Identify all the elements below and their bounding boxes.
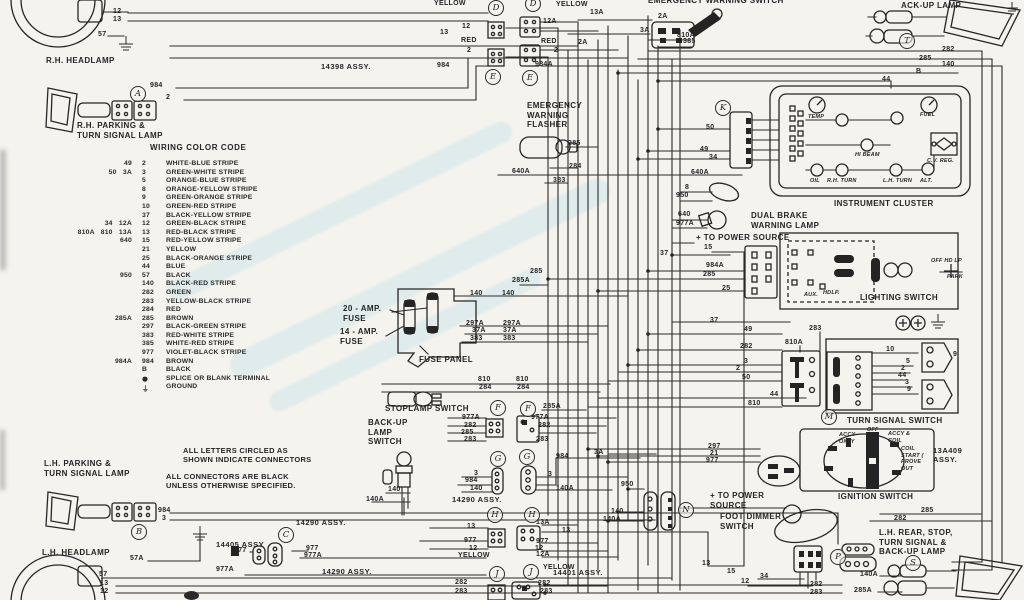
color-code-row: 284RED	[56, 306, 336, 315]
wire-label: 977A	[462, 414, 480, 422]
cc-alias: 49	[56, 160, 142, 169]
wire-label: 12	[462, 23, 470, 31]
component-label: EMERGENCY WARNING SWITCH	[648, 0, 784, 6]
wire-label: 283	[464, 436, 477, 444]
cc-code: 984	[142, 358, 166, 367]
color-code-rows: 492WHITE-BLUE STRIPE50 3A3GREEN-WHITE ST…	[56, 160, 336, 392]
wire-label: 25	[722, 285, 730, 293]
color-code-row: 44BLUE	[56, 263, 336, 272]
wire-label: 57	[99, 571, 107, 579]
color-code-row: 297BLACK-GREEN STRIPE	[56, 323, 336, 332]
wire-label: 640	[678, 211, 691, 219]
component-label: L.H. HEADLAMP	[42, 548, 110, 558]
wiring-diagram-canvas: WIRING COLOR CODE 492WHITE-BLUE STRIPE50…	[0, 0, 1024, 600]
connector-circle-G: G	[519, 449, 535, 465]
cc-code: 37	[142, 212, 166, 221]
cc-code: 282	[142, 289, 166, 298]
cc-code: 283	[142, 298, 166, 307]
wire-label: 44	[770, 391, 778, 399]
color-code-row: 10GREEN-RED STRIPE	[56, 203, 336, 212]
wire-label: 5	[906, 358, 910, 366]
wire-label: B	[916, 68, 921, 76]
color-code-row: 21YELLOW	[56, 246, 336, 255]
cc-alias	[56, 349, 142, 358]
wire-label: 984	[437, 62, 450, 70]
cc-name: BLUE	[166, 263, 336, 272]
wire-label: 285A	[543, 403, 561, 411]
wire-label: 140	[388, 486, 401, 494]
cc-code: 5	[142, 177, 166, 186]
cc-alias	[56, 255, 142, 264]
assembly-label: 14401 ASSY.	[553, 569, 603, 578]
cc-name: BLACK-GREEN STRIPE	[166, 323, 336, 332]
wire-label: 3A	[594, 449, 604, 457]
wire-label: 13	[440, 29, 448, 37]
wire-label: 140	[502, 290, 515, 298]
wire-label: RED	[461, 37, 477, 45]
cc-alias	[56, 375, 142, 384]
color-code-row: 8ORANGE-YELLOW STRIPE	[56, 186, 336, 195]
component-label: EMERGENCY WARNING FLASHER	[527, 101, 582, 130]
component-label: STOPLAMP SWITCH	[385, 404, 469, 414]
cc-alias	[56, 194, 142, 203]
wire-label: 2A	[578, 39, 588, 47]
cc-code: 284	[142, 306, 166, 315]
wire-label: 12	[113, 8, 121, 16]
cc-alias	[56, 383, 142, 392]
cc-alias: 950	[56, 272, 142, 281]
assembly-label: 14405 ASSY	[216, 541, 264, 550]
component-label: 14 - AMP. FUSE	[340, 327, 378, 346]
wire-label: 385	[568, 140, 581, 148]
connector-circle-F: F	[490, 400, 506, 416]
rh-parking-lamp-shape	[46, 88, 77, 132]
component-label: L.H. REAR, STOP, TURN SIGNAL & BACK-UP L…	[879, 528, 953, 557]
cc-alias: 34 12A	[56, 220, 142, 229]
wire-label: 57A	[130, 555, 144, 563]
connector-circle-H: H	[487, 507, 503, 523]
wire-label: 282	[538, 422, 551, 430]
cc-code: 2	[142, 160, 166, 169]
wire-label: 9	[953, 351, 957, 359]
color-code-row: 140BLACK-RED STRIPE	[56, 280, 336, 289]
foot-dimmer-shape	[771, 504, 840, 549]
wire-label: 140	[470, 485, 483, 493]
wire-label: 285	[703, 271, 716, 279]
color-code-row: 283YELLOW-BLACK STRIPE	[56, 298, 336, 307]
tiny-label: ACCY & COIL	[888, 431, 910, 444]
cc-name: BLACK-YELLOW STRIPE	[166, 212, 336, 221]
cc-alias	[56, 186, 142, 195]
wire-label: 284	[479, 384, 492, 392]
wire-label: 140	[942, 61, 955, 69]
color-code-row: 385WHITE-RED STRIPE	[56, 340, 336, 349]
cc-code: 44	[142, 263, 166, 272]
cc-code: 3	[142, 169, 166, 178]
wire-label: 283	[536, 436, 549, 444]
color-code-row: ●SPLICE OR BLANK TERMINAL	[56, 375, 336, 384]
cc-alias	[56, 340, 142, 349]
wire-label: 8	[685, 184, 689, 192]
wire-label: 810	[748, 400, 761, 408]
wire-label: 34	[709, 154, 717, 162]
color-code-row: 285A285BROWN	[56, 315, 336, 324]
assembly-label: 14290 ASSY.	[452, 496, 502, 505]
wire-label: 37	[710, 317, 718, 325]
wire-label: 383	[503, 335, 516, 343]
tiny-label: TEMP	[808, 114, 824, 121]
assembly-label: 14290 ASSY.	[322, 568, 372, 577]
wire-label: YELLOW	[434, 0, 466, 8]
tiny-label: L.H. TURN	[883, 178, 912, 185]
wire-label: 3	[548, 471, 552, 479]
cc-alias: 810A 810 13A	[56, 229, 142, 238]
wire-label: 37A	[472, 327, 486, 335]
cc-alias	[56, 177, 142, 186]
wire-label: 282	[455, 579, 468, 587]
assembly-label: 13A409 ASSY.	[933, 447, 962, 464]
wire-label: YELLOW	[458, 552, 490, 560]
wire-label: 950	[676, 192, 689, 200]
connector-circle-M: M	[821, 409, 837, 425]
cc-name: RED-WHITE STRIPE	[166, 332, 336, 341]
cc-code: 8	[142, 186, 166, 195]
connector-circle-A: A	[130, 86, 146, 102]
cc-name: YELLOW-BLACK STRIPE	[166, 298, 336, 307]
connector-circle-E: E	[522, 70, 538, 86]
tiny-label: HI BEAM	[855, 152, 880, 159]
connector-circle-F: F	[520, 401, 536, 417]
cc-alias: 50 3A	[56, 169, 142, 178]
note-text: ALL LETTERS CIRCLED AS SHOWN INDICATE CO…	[183, 446, 311, 465]
assembly-label: 14398 ASSY.	[321, 63, 371, 72]
cc-code: 25	[142, 255, 166, 264]
cc-code: 383	[142, 332, 166, 341]
cc-code: B	[142, 366, 166, 375]
wire-label: 2	[554, 47, 558, 55]
wire-label: 12	[100, 588, 108, 596]
cc-code: 21	[142, 246, 166, 255]
cc-name: RED-BLACK STRIPE	[166, 229, 336, 238]
wire-label: 810A	[785, 339, 803, 347]
connector-circle-C: C	[278, 527, 294, 543]
wire-label: 984A	[535, 61, 553, 69]
wire-label: 984	[556, 453, 569, 461]
wire-label: 2	[467, 47, 471, 55]
wire-label: 810	[478, 376, 491, 384]
cc-alias: 285A	[56, 315, 142, 324]
wire-label: 50	[706, 124, 714, 132]
wire-label: 383	[470, 335, 483, 343]
cc-alias	[56, 323, 142, 332]
component-label: TURN SIGNAL SWITCH	[847, 416, 943, 426]
component-label: R.H. PARKING & TURN SIGNAL LAMP	[77, 121, 163, 140]
cc-code: ⏚	[142, 383, 166, 392]
wire-label: 977A	[676, 220, 694, 228]
component-label: BACK-UP LAMP SWITCH	[368, 418, 408, 447]
wire-label: 3	[162, 515, 166, 523]
cc-name: GREEN-ORANGE STRIPE	[166, 194, 336, 203]
cc-code: 297	[142, 323, 166, 332]
wire-label: 285	[530, 268, 543, 276]
cc-code: 10	[142, 203, 166, 212]
color-code-row: 25BLACK-ORANGE STRIPE	[56, 255, 336, 264]
tiny-label: C.V. REG.	[927, 158, 954, 165]
wire-label: 12A	[536, 551, 550, 559]
wire-label: 285	[921, 507, 934, 515]
wire-label: 140A	[366, 496, 384, 504]
wire-label: 15	[727, 568, 735, 576]
component-label: FUSE PANEL	[419, 355, 473, 365]
wire-label: 284	[517, 384, 530, 392]
tiny-label: COIL START ( PROVE OUT	[901, 446, 924, 472]
wire-label: 50	[742, 374, 750, 382]
wire-label: 2	[736, 365, 740, 373]
cc-code: 385	[142, 340, 166, 349]
component-label: INSTRUMENT CLUSTER	[834, 199, 934, 209]
wire-label: 3A	[640, 27, 650, 35]
color-code-row: 984A984BROWN	[56, 358, 336, 367]
color-code-row: 492WHITE-BLUE STRIPE	[56, 160, 336, 169]
cc-alias	[56, 306, 142, 315]
cc-code: 285	[142, 315, 166, 324]
color-code-row: 37BLACK-YELLOW STRIPE	[56, 212, 336, 221]
wire-label: 140A	[556, 485, 574, 493]
cc-code: 15	[142, 237, 166, 246]
wire-label: 3	[744, 358, 748, 366]
cc-name: RED	[166, 306, 336, 315]
wire-label: 57	[98, 31, 106, 39]
wire-label: 284	[569, 163, 582, 171]
backup-switch-shape	[397, 452, 411, 466]
cc-alias	[56, 212, 142, 221]
component-label: LIGHTING SWITCH	[860, 293, 938, 303]
wire-label: 977	[464, 537, 477, 545]
note-text: ALL CONNECTORS ARE BLACK UNLESS OTHERWIS…	[166, 472, 296, 491]
wire-label: 2	[166, 94, 170, 102]
color-code-row: 9GREEN-ORANGE STRIPE	[56, 194, 336, 203]
color-code-row: 383RED-WHITE STRIPE	[56, 332, 336, 341]
wire-label: 984	[158, 507, 171, 515]
cc-alias	[56, 298, 142, 307]
cc-name: BLACK	[166, 366, 336, 375]
color-code-row: 810A 810 13A13RED-BLACK STRIPE	[56, 229, 336, 238]
tiny-label: OFF	[867, 427, 879, 434]
wire-label: 44	[882, 76, 890, 84]
cc-alias	[56, 366, 142, 375]
wire-label: 282	[942, 46, 955, 54]
wire-label: 283	[810, 589, 823, 597]
cc-name: BROWN	[166, 315, 336, 324]
cc-name: RED-YELLOW STRIPE	[166, 237, 336, 246]
wire-label: 282	[538, 580, 551, 588]
cc-alias	[56, 332, 142, 341]
cc-code: 13	[142, 229, 166, 238]
connector-circle-G: G	[490, 451, 506, 467]
tiny-label: PARK	[947, 274, 963, 281]
color-code-row: 64015RED-YELLOW STRIPE	[56, 237, 336, 246]
connector-circle-J: J	[489, 566, 505, 582]
component-label: FOOT DIMMER SWITCH	[720, 512, 781, 531]
assembly-label: 14290 ASSY.	[296, 519, 346, 528]
cc-name: WHITE-RED STRIPE	[166, 340, 336, 349]
wire-label: 810	[516, 376, 529, 384]
wire-label: 10	[886, 346, 894, 354]
connector-circle-S: S	[905, 555, 921, 571]
cc-alias	[56, 203, 142, 212]
connector-circle-T: T	[899, 33, 915, 49]
wire-label: 13	[467, 523, 475, 531]
wire-label: YELLOW	[556, 1, 588, 9]
connector-circle-N: N	[678, 502, 694, 518]
cc-name: BROWN	[166, 358, 336, 367]
tiny-label: OFF HD LP	[931, 258, 962, 265]
wire-label: 285A	[854, 587, 872, 595]
tiny-label: ACCY ONLY	[839, 432, 855, 445]
wire-label: 13	[100, 580, 108, 588]
tiny-label: R.H. TURN	[827, 178, 857, 185]
wire-label: 12A	[543, 18, 557, 26]
wire-label: 37	[660, 250, 668, 258]
cc-code: 9	[142, 194, 166, 203]
wire-label: 140A	[860, 571, 878, 579]
cc-name: ORANGE-BLUE STRIPE	[166, 177, 336, 186]
connector-circle-H: H	[524, 507, 540, 523]
cc-alias: 984A	[56, 358, 142, 367]
wire-label: 977A	[216, 566, 234, 574]
cc-name: SPLICE OR BLANK TERMINAL	[166, 375, 336, 384]
cc-alias	[56, 280, 142, 289]
wiring-color-code: WIRING COLOR CODE 492WHITE-BLUE STRIPE50…	[56, 143, 336, 392]
wire-label: 282	[740, 343, 753, 351]
cc-name: ORANGE-YELLOW STRIPE	[166, 186, 336, 195]
rh-headlamp-shape	[11, 0, 105, 47]
component-label: + TO POWER SOURCE	[710, 491, 764, 510]
cc-alias	[56, 263, 142, 272]
tiny-label: ALT.	[920, 178, 932, 185]
cc-name: GREEN-BLACK STRIPE	[166, 220, 336, 229]
wire-label: 12	[741, 578, 749, 586]
component-label: DUAL BRAKE WARNING LAMP	[751, 211, 819, 230]
tiny-label: FUEL	[920, 112, 935, 119]
wire-label: 950	[621, 481, 634, 489]
cc-name: BLACK-ORANGE STRIPE	[166, 255, 336, 264]
connector-circle-E: E	[485, 69, 501, 85]
wire-label: RED	[541, 38, 557, 46]
tiny-label: AUX.	[804, 292, 818, 299]
tiny-label: OIL	[810, 178, 820, 185]
wire-label: 984	[465, 477, 478, 485]
cc-alias	[56, 289, 142, 298]
cc-alias: 640	[56, 237, 142, 246]
cc-name: BLACK	[166, 272, 336, 281]
color-code-row: 5ORANGE-BLUE STRIPE	[56, 177, 336, 186]
wire-label: 640A	[512, 168, 530, 176]
tiny-label: HDLP.	[823, 290, 840, 297]
color-code-row: 977VIOLET-BLACK STRIPE	[56, 349, 336, 358]
wire-label: 285	[919, 55, 932, 63]
connector-circle-J: J	[523, 564, 539, 580]
wire-label: 13A	[590, 9, 604, 17]
cc-name: GREEN-WHITE STRIPE	[166, 169, 336, 178]
color-code-row: 34 12A12GREEN-BLACK STRIPE	[56, 220, 336, 229]
wire-label: 13	[702, 560, 710, 568]
component-label: IGNITION SWITCH	[838, 492, 913, 502]
component-label: L.H. PARKING & TURN SIGNAL LAMP	[44, 459, 130, 478]
wire-label: 977A	[531, 414, 549, 422]
wire-label: 2A	[658, 13, 668, 21]
cc-name: WHITE-BLUE STRIPE	[166, 160, 336, 169]
wire-label: 285A	[512, 277, 530, 285]
wire-label: 34	[760, 573, 768, 581]
component-label: + TO POWER SOURCE	[696, 233, 790, 243]
wire-label: 37A	[503, 327, 517, 335]
color-code-row: 50 3A3GREEN-WHITE STRIPE	[56, 169, 336, 178]
wire-label: 977	[706, 457, 719, 465]
cc-name: GREEN	[166, 289, 336, 298]
wire-label: 15	[704, 244, 712, 252]
lh-headlamp-shape	[11, 555, 105, 600]
wire-label: 385	[683, 38, 696, 46]
connector-circle-P: P	[830, 549, 846, 565]
cc-code: 977	[142, 349, 166, 358]
color-code-row: 282GREEN	[56, 289, 336, 298]
wire-label: 13	[562, 527, 570, 535]
wire-label: 49	[700, 146, 708, 154]
wire-label: 13	[113, 16, 121, 24]
cc-code: 57	[142, 272, 166, 281]
wire-label: 140	[470, 290, 483, 298]
wire-label: 283	[455, 588, 468, 596]
wire-label: 984A	[706, 262, 724, 270]
wire-label: 282	[894, 515, 907, 523]
connector-circle-D: D	[488, 0, 504, 16]
component-label: 20 - AMP. FUSE	[343, 304, 381, 323]
component-label: R.H. HEADLAMP	[46, 56, 115, 66]
cc-name: VIOLET-BLACK STRIPE	[166, 349, 336, 358]
cc-code: 12	[142, 220, 166, 229]
component-label: ACK-UP LAMP	[901, 1, 961, 11]
color-code-row: 95057BLACK	[56, 272, 336, 281]
color-code-title: WIRING COLOR CODE	[150, 143, 336, 152]
cc-alias	[56, 246, 142, 255]
cc-name: BLACK-RED STRIPE	[166, 280, 336, 289]
wire-label: 283	[540, 588, 553, 596]
cc-name: YELLOW	[166, 246, 336, 255]
cc-code: ●	[142, 375, 166, 384]
wire-label: 9	[907, 386, 911, 394]
wire-label: 383	[553, 177, 566, 185]
wire-label: 640A	[691, 169, 709, 177]
cc-name: GREEN-RED STRIPE	[166, 203, 336, 212]
wire-label: 282	[810, 581, 823, 589]
connector-circle-K: K	[715, 100, 731, 116]
wire-label: 140A	[603, 516, 621, 524]
cc-name: GROUND	[166, 383, 336, 392]
cc-code: 140	[142, 280, 166, 289]
color-code-row: ⏚GROUND	[56, 383, 336, 392]
wire-label: 977A	[304, 552, 322, 560]
wire-label: 984	[150, 82, 163, 90]
wire-label: 49	[744, 326, 752, 334]
connector-circle-B: B	[131, 524, 147, 540]
wire-label: 283	[809, 325, 822, 333]
wire-label: 140	[611, 508, 624, 516]
color-code-row: BBLACK	[56, 366, 336, 375]
